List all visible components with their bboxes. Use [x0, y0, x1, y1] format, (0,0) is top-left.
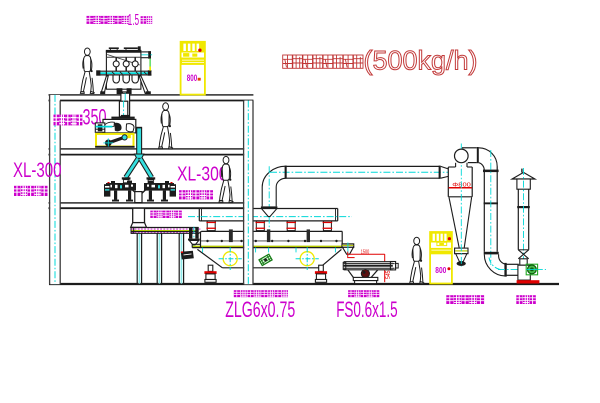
svg-text:545: 545	[385, 270, 392, 279]
svg-text:1.5: 1.5	[128, 12, 140, 29]
svg-text:XL-300: XL-300	[13, 158, 62, 182]
svg-text:(500kg/h): (500kg/h)	[364, 46, 478, 76]
svg-text:800: 800	[435, 265, 446, 275]
svg-text:800: 800	[187, 73, 197, 83]
svg-text:ZLG6x0.75: ZLG6x0.75	[225, 297, 295, 322]
svg-text:XL-300: XL-300	[177, 164, 228, 186]
svg-text:FS0.6x1.5: FS0.6x1.5	[336, 297, 398, 322]
svg-text:1500: 1500	[361, 249, 370, 255]
